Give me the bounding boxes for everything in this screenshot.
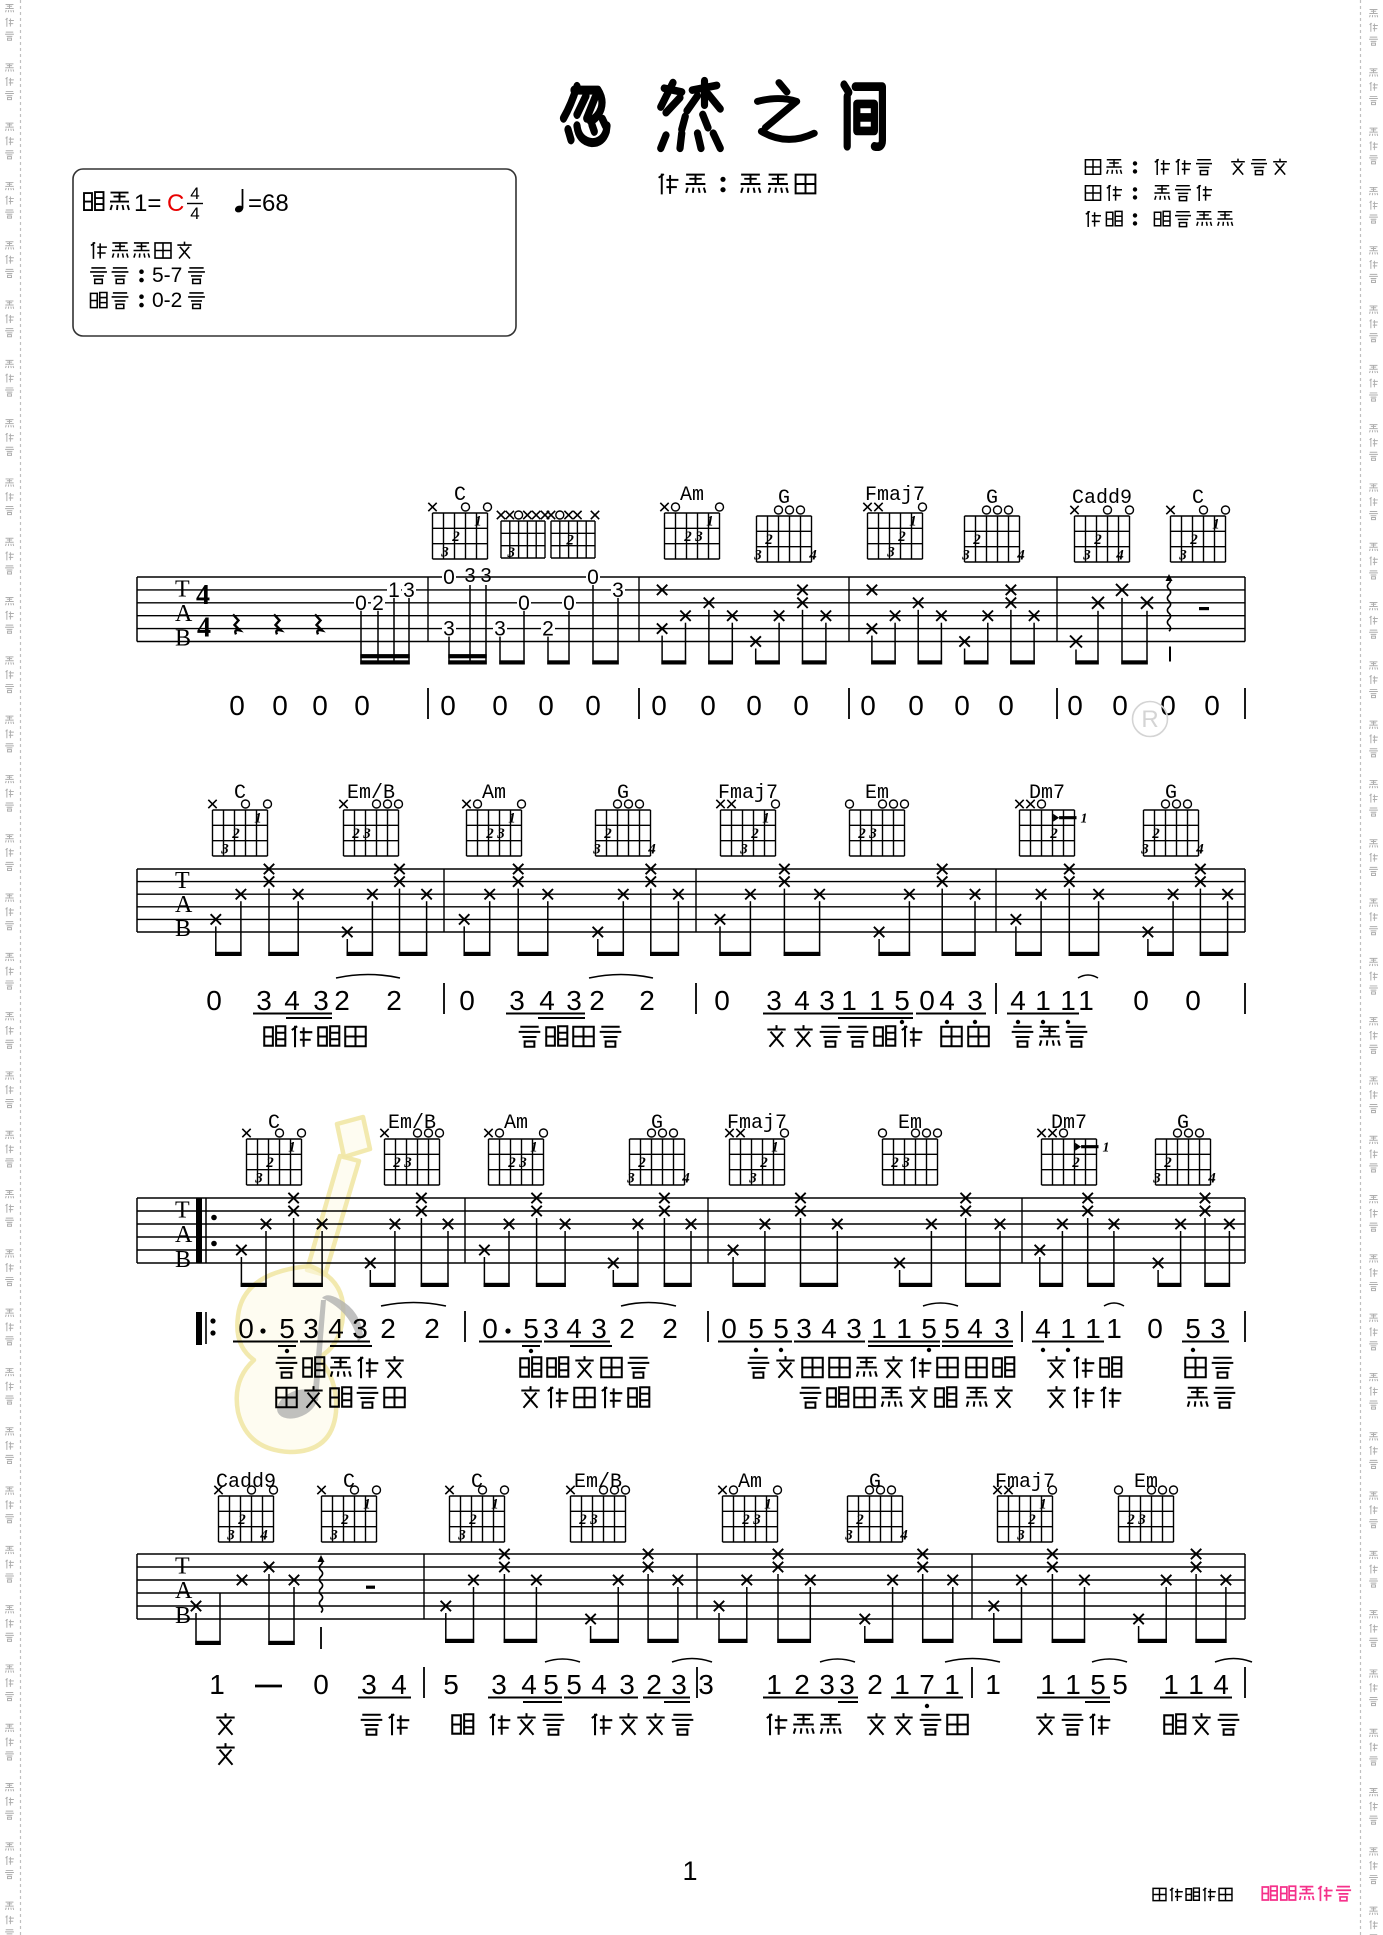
svg-text:2: 2 — [867, 1669, 883, 1700]
svg-text:1: 1 — [491, 1497, 499, 1513]
svg-text:5: 5 — [1185, 1313, 1201, 1344]
svg-text:0: 0 — [860, 690, 876, 721]
svg-text:3: 3 — [303, 1313, 319, 1344]
svg-text:1: 1 — [1106, 1313, 1122, 1344]
svg-text:1: 1 — [944, 1669, 960, 1700]
svg-text:C: C — [167, 190, 184, 217]
svg-text:4: 4 — [1016, 547, 1025, 563]
svg-text:2: 2 — [231, 826, 240, 842]
svg-text:5: 5 — [773, 1313, 789, 1344]
svg-text:C: C — [234, 782, 246, 805]
svg-text:3: 3 — [796, 1313, 812, 1344]
svg-text:3: 3 — [1082, 547, 1091, 563]
svg-text:Em/B: Em/B — [574, 1471, 622, 1494]
svg-text:0: 0 — [998, 690, 1014, 721]
svg-text:G: G — [617, 782, 629, 805]
svg-text:3: 3 — [313, 985, 329, 1016]
svg-text:3: 3 — [226, 1527, 235, 1543]
svg-text:3: 3 — [698, 1669, 714, 1700]
svg-text:3: 3 — [766, 985, 782, 1016]
svg-text:2: 2 — [662, 1313, 678, 1344]
svg-text:1: 1 — [909, 514, 917, 530]
svg-text:3: 3 — [491, 1669, 507, 1700]
svg-text:0: 0 — [538, 690, 554, 721]
svg-text:Fmaj7: Fmaj7 — [995, 1471, 1055, 1494]
svg-text:B: B — [175, 625, 191, 651]
svg-text:0: 0 — [482, 1313, 498, 1344]
svg-text:4: 4 — [681, 1170, 690, 1186]
svg-text:1: 1 — [1065, 1669, 1081, 1700]
svg-text:0: 0 — [714, 985, 730, 1016]
svg-text:2: 2 — [741, 1512, 750, 1528]
svg-text:2: 2 — [683, 529, 692, 545]
svg-text:C: C — [343, 1471, 355, 1494]
svg-text:0: 0 — [908, 690, 924, 721]
svg-text:1: 1 — [530, 1140, 538, 1156]
svg-text:1: 1 — [1039, 1497, 1047, 1513]
svg-text:5: 5 — [921, 1313, 937, 1344]
svg-text:1: 1 — [1188, 1669, 1204, 1700]
svg-text:1: 1 — [1078, 985, 1094, 1016]
svg-text:5: 5 — [566, 1669, 582, 1700]
svg-text:0: 0 — [954, 690, 970, 721]
svg-text:0: 0 — [492, 690, 508, 721]
svg-text:3: 3 — [361, 1669, 377, 1700]
svg-text:B: B — [175, 916, 191, 942]
svg-text:2: 2 — [265, 1155, 274, 1171]
svg-text:2: 2 — [485, 826, 494, 842]
svg-text:1: 1 — [1040, 1669, 1056, 1700]
svg-text:2: 2 — [340, 1512, 349, 1528]
svg-text:4: 4 — [647, 841, 656, 857]
svg-text:1: 1 — [1103, 1141, 1110, 1156]
svg-text:2: 2 — [1049, 826, 1058, 842]
svg-text:3: 3 — [1210, 1313, 1226, 1344]
svg-text:3: 3 — [496, 826, 505, 842]
svg-text:1: 1 — [288, 1140, 296, 1156]
svg-text:4: 4 — [1207, 1170, 1216, 1186]
svg-text:Cadd9: Cadd9 — [1072, 487, 1132, 510]
svg-text:3: 3 — [591, 1313, 607, 1344]
svg-text:Em/B: Em/B — [388, 1112, 436, 1135]
svg-text:4: 4 — [967, 1313, 983, 1344]
svg-text:2: 2 — [637, 1155, 646, 1171]
svg-text:3: 3 — [739, 841, 748, 857]
svg-text:4: 4 — [328, 1313, 344, 1344]
svg-text:3: 3 — [1152, 1170, 1161, 1186]
svg-text:3: 3 — [518, 1155, 527, 1171]
svg-text:3: 3 — [509, 985, 525, 1016]
svg-text:2: 2 — [603, 826, 612, 842]
svg-text:3: 3 — [994, 1313, 1010, 1344]
svg-text:4: 4 — [190, 204, 199, 223]
svg-text:Am: Am — [482, 782, 506, 805]
svg-text:T: T — [175, 576, 190, 602]
svg-text:3: 3 — [1178, 547, 1187, 563]
svg-text:1: 1 — [985, 1669, 1001, 1700]
svg-text:Am: Am — [738, 1471, 762, 1494]
svg-text:0: 0 — [1204, 690, 1220, 721]
svg-text:2: 2 — [764, 532, 773, 548]
svg-text:=68: =68 — [248, 190, 289, 217]
svg-text:3: 3 — [868, 826, 877, 842]
svg-text:3: 3 — [457, 1527, 466, 1543]
svg-text:3: 3 — [619, 1669, 635, 1700]
svg-text:3: 3 — [403, 1155, 412, 1171]
svg-text:2: 2 — [507, 1155, 516, 1171]
svg-text:4: 4 — [1035, 1313, 1051, 1344]
svg-text:0: 0 — [1133, 985, 1149, 1016]
svg-text:T: T — [175, 1554, 190, 1580]
svg-text:2: 2 — [589, 985, 605, 1016]
svg-text:R: R — [1141, 706, 1158, 733]
svg-text:Em/B: Em/B — [347, 782, 395, 805]
svg-text:2: 2 — [565, 533, 574, 549]
svg-text:3: 3 — [671, 1669, 687, 1700]
svg-text:0: 0 — [440, 690, 456, 721]
svg-text:2: 2 — [639, 985, 655, 1016]
svg-text:0: 0 — [746, 690, 762, 721]
svg-text:1: 1 — [363, 1497, 371, 1513]
svg-text:1: 1 — [508, 811, 516, 827]
svg-text:4: 4 — [391, 1669, 407, 1700]
svg-text:4: 4 — [808, 547, 817, 563]
svg-text:2: 2 — [646, 1669, 662, 1700]
svg-text:7: 7 — [919, 1669, 935, 1700]
svg-text:2: 2 — [380, 1313, 396, 1344]
svg-text:G: G — [1165, 782, 1177, 805]
svg-text:3: 3 — [819, 1669, 835, 1700]
svg-text:0: 0 — [206, 985, 222, 1016]
svg-text:0: 0 — [459, 985, 475, 1016]
svg-text:0: 0 — [1112, 690, 1128, 721]
svg-text:Dm7: Dm7 — [1051, 1112, 1087, 1135]
svg-text:2: 2 — [897, 529, 906, 545]
svg-text:4: 4 — [521, 1669, 537, 1700]
svg-text:5: 5 — [748, 1313, 764, 1344]
svg-text:5: 5 — [443, 1669, 459, 1700]
svg-text:0: 0 — [272, 690, 288, 721]
svg-text:4: 4 — [1213, 1669, 1229, 1700]
svg-text:0: 0 — [229, 690, 245, 721]
svg-text:0: 0 — [238, 1313, 254, 1344]
svg-text:0: 0 — [1147, 1313, 1163, 1344]
svg-text:B: B — [175, 1247, 191, 1273]
svg-text:3: 3 — [1137, 1512, 1146, 1528]
svg-text:4: 4 — [794, 985, 810, 1016]
svg-text:0: 0 — [721, 1313, 737, 1344]
svg-text:3: 3 — [1140, 841, 1149, 857]
svg-text:C: C — [471, 1471, 483, 1494]
svg-text:0: 0 — [651, 690, 667, 721]
svg-text:5-7: 5-7 — [152, 264, 182, 287]
svg-text:G: G — [1177, 1112, 1189, 1135]
svg-text:3: 3 — [480, 565, 491, 587]
svg-text:2: 2 — [759, 1155, 768, 1171]
svg-text:1: 1 — [896, 1313, 912, 1344]
svg-text:2: 2 — [334, 985, 350, 1016]
svg-text:G: G — [869, 1471, 881, 1494]
svg-text:2: 2 — [1126, 1512, 1135, 1528]
svg-text:1: 1 — [1035, 985, 1051, 1016]
svg-text:1: 1 — [766, 1669, 782, 1700]
svg-text:Am: Am — [504, 1112, 528, 1135]
svg-text:1: 1 — [762, 811, 770, 827]
svg-text:A: A — [175, 601, 193, 627]
svg-text:0: 0 — [585, 690, 601, 721]
svg-text:5: 5 — [523, 1313, 539, 1344]
svg-text:1: 1 — [1085, 1313, 1101, 1344]
svg-text:1: 1 — [894, 1669, 910, 1700]
svg-text:1: 1 — [1163, 1669, 1179, 1700]
svg-text:0: 0 — [700, 690, 716, 721]
svg-text:5: 5 — [894, 985, 910, 1016]
svg-text:3: 3 — [819, 985, 835, 1016]
svg-text:2: 2 — [392, 1155, 401, 1171]
svg-text:5: 5 — [543, 1669, 559, 1700]
svg-text:3: 3 — [589, 1512, 598, 1528]
svg-text:4: 4 — [196, 580, 210, 611]
svg-text:2: 2 — [386, 985, 402, 1016]
svg-text:1: 1 — [682, 1856, 697, 1886]
svg-text:3: 3 — [753, 547, 762, 563]
svg-text:3: 3 — [752, 1512, 761, 1528]
svg-text:0: 0 — [443, 566, 455, 589]
svg-text:3: 3 — [507, 545, 516, 561]
svg-text:5: 5 — [1112, 1669, 1128, 1700]
svg-text:1: 1 — [1212, 517, 1220, 533]
svg-text:3: 3 — [464, 565, 475, 587]
svg-text:4: 4 — [190, 184, 199, 203]
svg-text:5: 5 — [279, 1313, 295, 1344]
svg-text:1: 1 — [771, 1140, 779, 1156]
svg-text:3: 3 — [694, 529, 703, 545]
svg-text:Fmaj7: Fmaj7 — [718, 782, 778, 805]
svg-text:3: 3 — [1016, 1527, 1025, 1543]
svg-text:2: 2 — [855, 1512, 864, 1528]
svg-text:2: 2 — [1151, 826, 1160, 842]
svg-text:3: 3 — [844, 1527, 853, 1543]
svg-text:2: 2 — [351, 826, 360, 842]
svg-text:0-2: 0-2 — [152, 289, 182, 312]
svg-text:2: 2 — [890, 1155, 899, 1171]
svg-text:1: 1 — [1081, 812, 1088, 827]
svg-text:3: 3 — [626, 1170, 635, 1186]
svg-text:3: 3 — [846, 1313, 862, 1344]
svg-text:4: 4 — [899, 1527, 908, 1543]
svg-text:4: 4 — [591, 1669, 607, 1700]
svg-text:4: 4 — [1115, 547, 1124, 563]
svg-text:2: 2 — [1189, 532, 1198, 548]
svg-text:1: 1 — [1060, 985, 1076, 1016]
svg-text:1: 1 — [871, 1313, 887, 1344]
svg-text:0: 0 — [793, 690, 809, 721]
svg-text:3: 3 — [329, 1527, 338, 1543]
svg-text:2: 2 — [1093, 532, 1102, 548]
svg-text:3: 3 — [254, 1170, 263, 1186]
svg-text:Em: Em — [898, 1112, 922, 1135]
svg-text:3: 3 — [543, 1313, 559, 1344]
svg-text:Fmaj7: Fmaj7 — [727, 1112, 787, 1135]
svg-text:1: 1 — [1060, 1313, 1076, 1344]
svg-text:4: 4 — [939, 985, 955, 1016]
svg-text:B: B — [175, 1603, 191, 1629]
svg-text:2: 2 — [619, 1313, 635, 1344]
svg-text:A: A — [175, 1222, 193, 1248]
svg-text:Dm7: Dm7 — [1029, 782, 1065, 805]
svg-text:5: 5 — [944, 1313, 960, 1344]
svg-text:1: 1 — [474, 514, 482, 530]
svg-text:3: 3 — [748, 1170, 757, 1186]
svg-text:2: 2 — [794, 1669, 810, 1700]
svg-text:0: 0 — [354, 690, 370, 721]
svg-text:4: 4 — [821, 1313, 837, 1344]
svg-text:4: 4 — [539, 985, 555, 1016]
svg-text:A: A — [175, 1578, 193, 1604]
svg-text:4: 4 — [1195, 841, 1204, 857]
svg-text:T: T — [175, 1198, 190, 1224]
svg-text:1: 1 — [209, 1669, 225, 1700]
svg-text:4: 4 — [284, 985, 300, 1016]
svg-text:2: 2 — [578, 1512, 587, 1528]
svg-text:2: 2 — [750, 826, 759, 842]
svg-text:2: 2 — [1163, 1155, 1172, 1171]
svg-text:2: 2 — [857, 826, 866, 842]
svg-text:3: 3 — [967, 985, 983, 1016]
svg-text:3: 3 — [362, 826, 371, 842]
svg-text:Cadd9: Cadd9 — [216, 1471, 276, 1494]
svg-text:2: 2 — [468, 1512, 477, 1528]
svg-text:3: 3 — [440, 544, 449, 560]
svg-text:4: 4 — [1010, 985, 1026, 1016]
svg-text:4: 4 — [259, 1527, 268, 1543]
svg-text:Em: Em — [1134, 1471, 1158, 1494]
svg-text:4: 4 — [197, 612, 211, 643]
svg-text:1=: 1= — [134, 190, 161, 217]
svg-text:3: 3 — [839, 1669, 855, 1700]
svg-text:1: 1 — [254, 811, 262, 827]
svg-text:T: T — [175, 868, 190, 894]
svg-text:3: 3 — [256, 985, 272, 1016]
svg-text:0: 0 — [919, 985, 935, 1016]
svg-text:Am: Am — [680, 484, 704, 507]
svg-text:2: 2 — [1071, 1155, 1080, 1171]
svg-text:1: 1 — [841, 985, 857, 1016]
svg-text:3: 3 — [352, 1313, 368, 1344]
svg-text:3: 3 — [592, 841, 601, 857]
svg-text:0: 0 — [313, 1669, 329, 1700]
svg-text:G: G — [651, 1112, 663, 1135]
svg-text:5: 5 — [1090, 1669, 1106, 1700]
svg-text:0: 0 — [1185, 985, 1201, 1016]
svg-text:2: 2 — [1027, 1512, 1036, 1528]
svg-text:1: 1 — [764, 1497, 772, 1513]
svg-text:1: 1 — [869, 985, 885, 1016]
svg-text:4: 4 — [566, 1313, 582, 1344]
svg-text:C: C — [268, 1112, 280, 1135]
svg-text:0: 0 — [312, 690, 328, 721]
svg-text:2: 2 — [424, 1313, 440, 1344]
svg-text:0: 0 — [1067, 690, 1083, 721]
svg-text:2: 2 — [451, 529, 460, 545]
svg-text:3: 3 — [961, 547, 970, 563]
svg-text:3: 3 — [566, 985, 582, 1016]
svg-text:3: 3 — [220, 841, 229, 857]
svg-text:3: 3 — [886, 544, 895, 560]
svg-text:2: 2 — [972, 532, 981, 548]
svg-text:A: A — [175, 892, 193, 918]
svg-text:2: 2 — [237, 1512, 246, 1528]
svg-text:1: 1 — [706, 514, 714, 530]
svg-text:3: 3 — [901, 1155, 910, 1171]
